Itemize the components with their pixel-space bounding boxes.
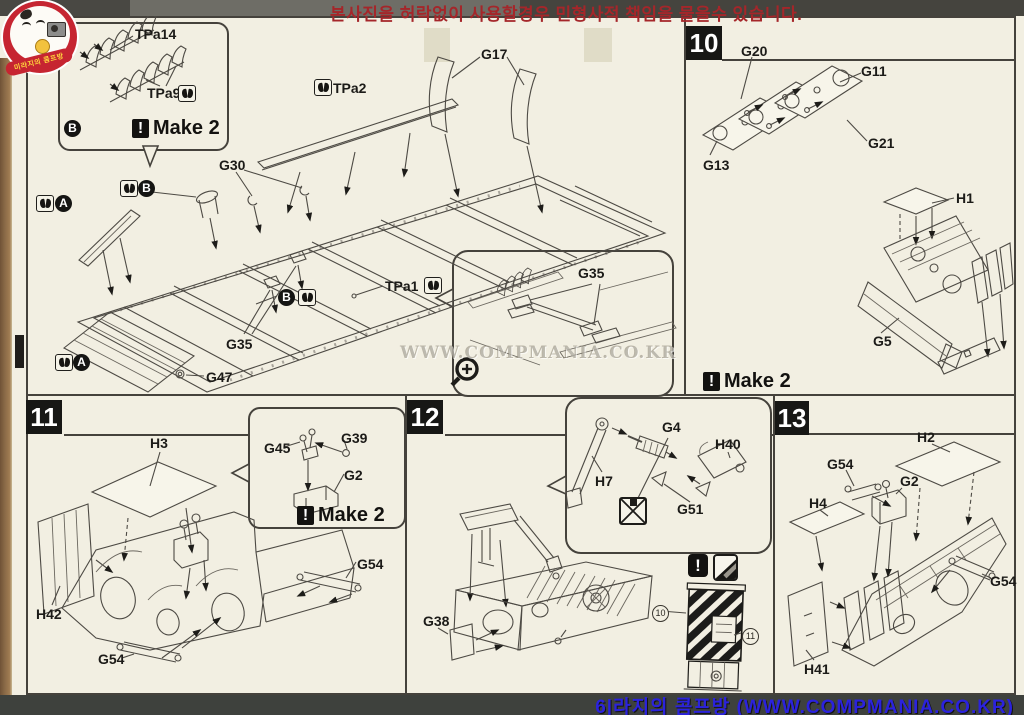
part-label: G11: [861, 63, 887, 79]
part-label: H2: [917, 429, 935, 445]
part-label: G20: [741, 43, 767, 59]
make-2-note: ! Make 2: [297, 504, 385, 527]
bleed-ghost: [424, 28, 450, 62]
part-label: G2: [900, 473, 919, 489]
part-label: H4: [809, 495, 827, 511]
step-number-11: 11: [26, 400, 62, 434]
circled-letter-marker: A: [73, 354, 90, 371]
dog-eye-icon: [36, 20, 45, 28]
make-2-text: Make 2: [318, 504, 385, 527]
part-label: G13: [703, 157, 729, 173]
scanned-instruction-page: 본사진을 허락없이 사용할경우 민형사적 책임을 물을수 있습니다. 미라지의 …: [0, 0, 1024, 715]
paint-icon: [713, 554, 738, 581]
part-label: G5: [873, 333, 892, 349]
exclamation-icon: !: [703, 372, 720, 391]
part-label: H1: [956, 190, 974, 206]
part-label: H3: [150, 435, 168, 451]
part-label: G30: [219, 157, 245, 173]
cement-icon: [36, 195, 54, 212]
part-label: G54: [98, 651, 124, 667]
cement-icon: [424, 277, 442, 294]
cement-icon: [120, 180, 138, 197]
part-label: TPa2: [333, 80, 366, 96]
exclamation-icon: !: [132, 119, 149, 138]
step-number-12: 12: [407, 400, 443, 434]
callout-h7-g4-h40: [565, 397, 772, 554]
part-label: G54: [827, 456, 853, 472]
part-label: TPa1: [385, 278, 418, 294]
site-banner-text: 6|라지의 콤프방 (WWW.COMPMANIA.CO.KR): [595, 692, 1014, 715]
step-number-10: 10: [686, 26, 722, 60]
step-header-rule: [722, 59, 1014, 61]
part-label: H42: [36, 606, 62, 622]
part-label: G54: [990, 573, 1016, 589]
dog-eye-icon: [22, 22, 31, 30]
watermark-text: WWW.COMPMANIA.CO.KR: [400, 343, 676, 363]
camera-icon: [47, 22, 66, 37]
part-label: G35: [226, 336, 252, 352]
hazard-plate: [684, 583, 746, 691]
part-label: G54: [357, 556, 383, 572]
make-2-text: Make 2: [153, 117, 220, 140]
scan-edge-tab: [15, 335, 24, 368]
exclamation-icon: !: [297, 506, 314, 525]
make-2-note: ! Make 2: [132, 117, 220, 140]
make-2-text: Make 2: [724, 370, 791, 393]
cement-icon: [55, 354, 73, 371]
make-2-note: ! Make 2: [703, 370, 791, 393]
panel-border: [684, 16, 686, 396]
step-header-rule: [809, 433, 1014, 435]
circled-number-marker: 11: [742, 628, 759, 645]
circled-letter-marker: A: [55, 195, 72, 212]
part-label: G38: [423, 613, 449, 629]
circled-letter-marker: B: [138, 180, 155, 197]
callout-g35-detail: [452, 250, 674, 397]
part-label: G21: [868, 135, 894, 151]
bleed-ghost: [584, 28, 612, 62]
logo-ring: 미라지의 콤프방: [3, 1, 77, 73]
attention-icon: !: [688, 554, 708, 577]
scan-edge-wood: [0, 58, 12, 715]
dog-ear-icon: [19, 8, 33, 20]
step-number-13: 13: [775, 401, 809, 435]
panel-border: [26, 16, 28, 695]
copyright-warning-text: 본사진을 허락없이 사용할경우 민형사적 책임을 물을수 있습니다.: [330, 0, 802, 25]
assembly-diagram-step-10: [703, 57, 1013, 374]
circled-letter-marker: B: [278, 289, 295, 306]
circled-number-marker: 10: [652, 605, 669, 622]
assembly-diagram-step-13: [788, 442, 1006, 666]
cement-icon: [314, 79, 332, 96]
part-label: G17: [481, 46, 507, 62]
panel-border: [1014, 16, 1016, 695]
part-label: G47: [206, 369, 232, 385]
panel-border: [773, 394, 775, 695]
cement-icon: [298, 289, 316, 306]
site-logo: 미라지의 콤프방: [3, 1, 81, 75]
part-label: H41: [804, 661, 830, 677]
